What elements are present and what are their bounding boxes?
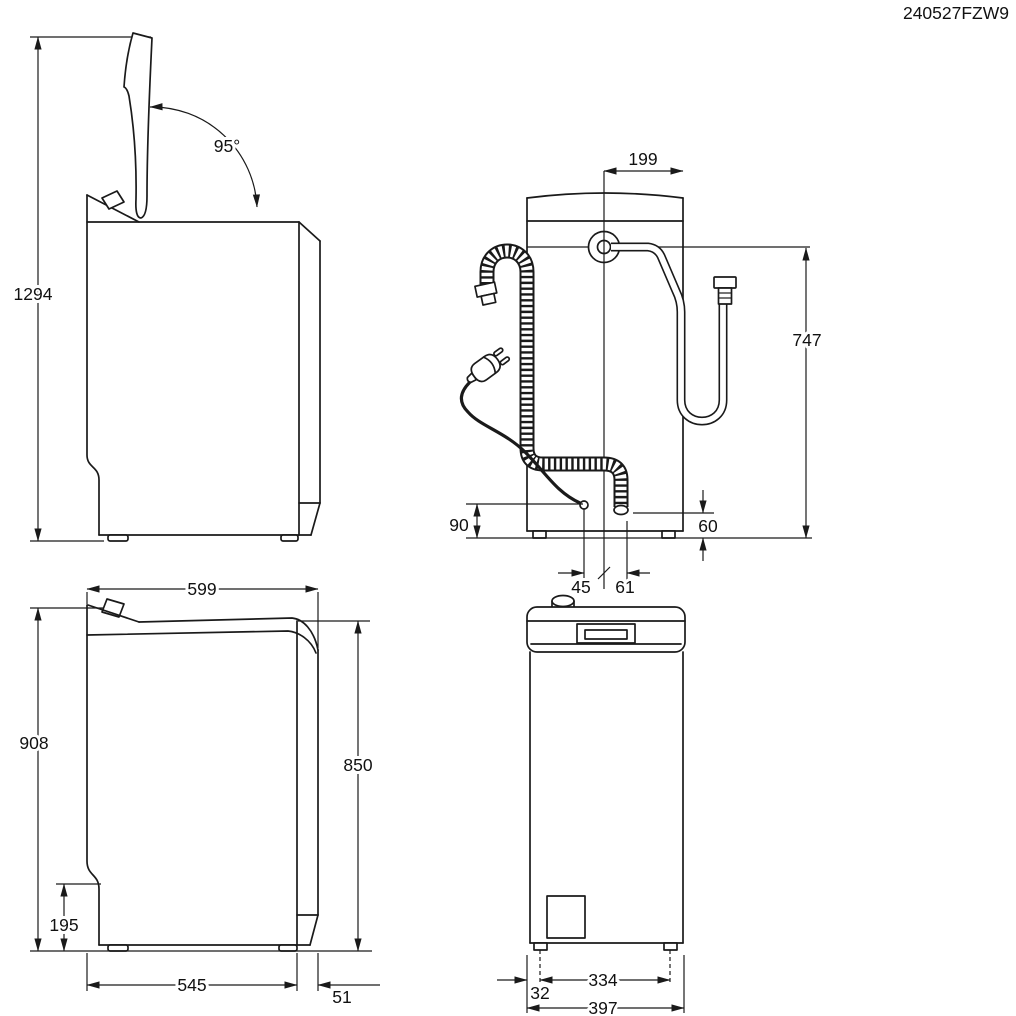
cord-offset-label: 45 xyxy=(571,577,590,597)
foot xyxy=(534,943,547,950)
cord-exit-point xyxy=(580,501,588,509)
lid-angle-label: 95° xyxy=(214,136,240,156)
plinth-height-label: 195 xyxy=(49,915,78,935)
height-total-label: 908 xyxy=(19,733,48,753)
inlet-hose xyxy=(611,247,736,421)
view-side-open: 95° 1294 xyxy=(14,33,320,541)
washer-side-open-body xyxy=(87,191,320,541)
foot xyxy=(279,945,297,951)
foot xyxy=(664,943,677,950)
drain-offset-label: 61 xyxy=(615,577,634,597)
drain-filter-door xyxy=(547,896,585,938)
power-plug-icon xyxy=(462,345,511,389)
depth-base-label: 545 xyxy=(177,975,206,995)
drain-hose-fitting xyxy=(475,282,499,306)
inlet-height-label: 747 xyxy=(792,330,821,350)
view-rear: 199 xyxy=(449,149,821,597)
foot xyxy=(108,945,128,951)
rear-clearance-label: 51 xyxy=(332,987,351,1007)
washer-side-closed-body xyxy=(87,599,318,951)
depth-label: 599 xyxy=(187,579,216,599)
inlet-hose-connector-ribs xyxy=(719,288,732,304)
lid-handle xyxy=(585,630,627,639)
technical-drawing-page: 95° 1294 199 xyxy=(0,0,1016,1016)
feet-spacing-label: 334 xyxy=(588,970,617,990)
program-knob xyxy=(102,191,124,209)
drain-hose-outlet xyxy=(614,506,628,515)
inlet-hose-connector xyxy=(714,277,736,288)
foot xyxy=(533,531,546,538)
height-body-label: 850 xyxy=(343,755,372,775)
drawing-code: 240527FZW9 xyxy=(903,3,1009,23)
washer-dimension-drawing: 95° 1294 199 xyxy=(0,0,1016,1016)
open-lid xyxy=(124,33,152,218)
cord-height-label: 90 xyxy=(449,515,469,535)
inlet-offset-label: 199 xyxy=(628,149,657,169)
washer-front-body xyxy=(527,607,685,950)
foot-inset-label: 32 xyxy=(530,983,549,1003)
foot xyxy=(108,535,128,541)
foot xyxy=(281,535,298,541)
drain-height-label: 60 xyxy=(698,516,718,536)
width-label: 397 xyxy=(588,998,617,1016)
drain-hose xyxy=(475,251,628,515)
view-side-closed: 599 908 850 195 xyxy=(19,579,380,1007)
lid-angle-arc xyxy=(150,107,257,207)
view-front: 334 32 397 xyxy=(497,596,685,1016)
height-open-label: 1294 xyxy=(14,284,53,304)
program-knob xyxy=(102,599,124,617)
foot xyxy=(662,531,675,538)
